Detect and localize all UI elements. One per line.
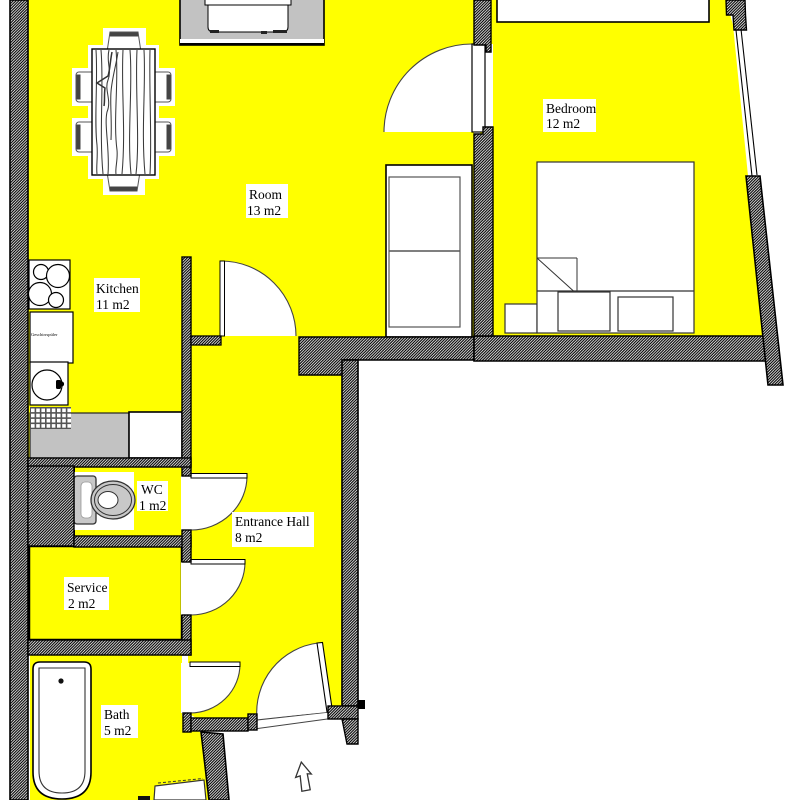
svg-text:Bath: Bath: [104, 707, 130, 722]
svg-text:2 m2: 2 m2: [68, 596, 95, 611]
svg-text:13 m2: 13 m2: [247, 203, 281, 218]
svg-text:1 m2: 1 m2: [139, 498, 166, 513]
svg-text:5 m2: 5 m2: [104, 723, 131, 738]
svg-text:Room: Room: [249, 187, 283, 202]
svg-text:Entrance Hall: Entrance Hall: [235, 514, 310, 529]
svg-text:Service: Service: [67, 580, 107, 595]
svg-text:Kitchen: Kitchen: [96, 281, 139, 296]
svg-text:Geschirrspüler: Geschirrspüler: [31, 332, 58, 337]
svg-text:8 m2: 8 m2: [235, 530, 262, 545]
svg-text:WC: WC: [141, 482, 163, 497]
svg-text:Bedroom: Bedroom: [546, 101, 597, 116]
svg-text:12 m2: 12 m2: [546, 116, 580, 131]
svg-text:11 m2: 11 m2: [96, 297, 130, 312]
